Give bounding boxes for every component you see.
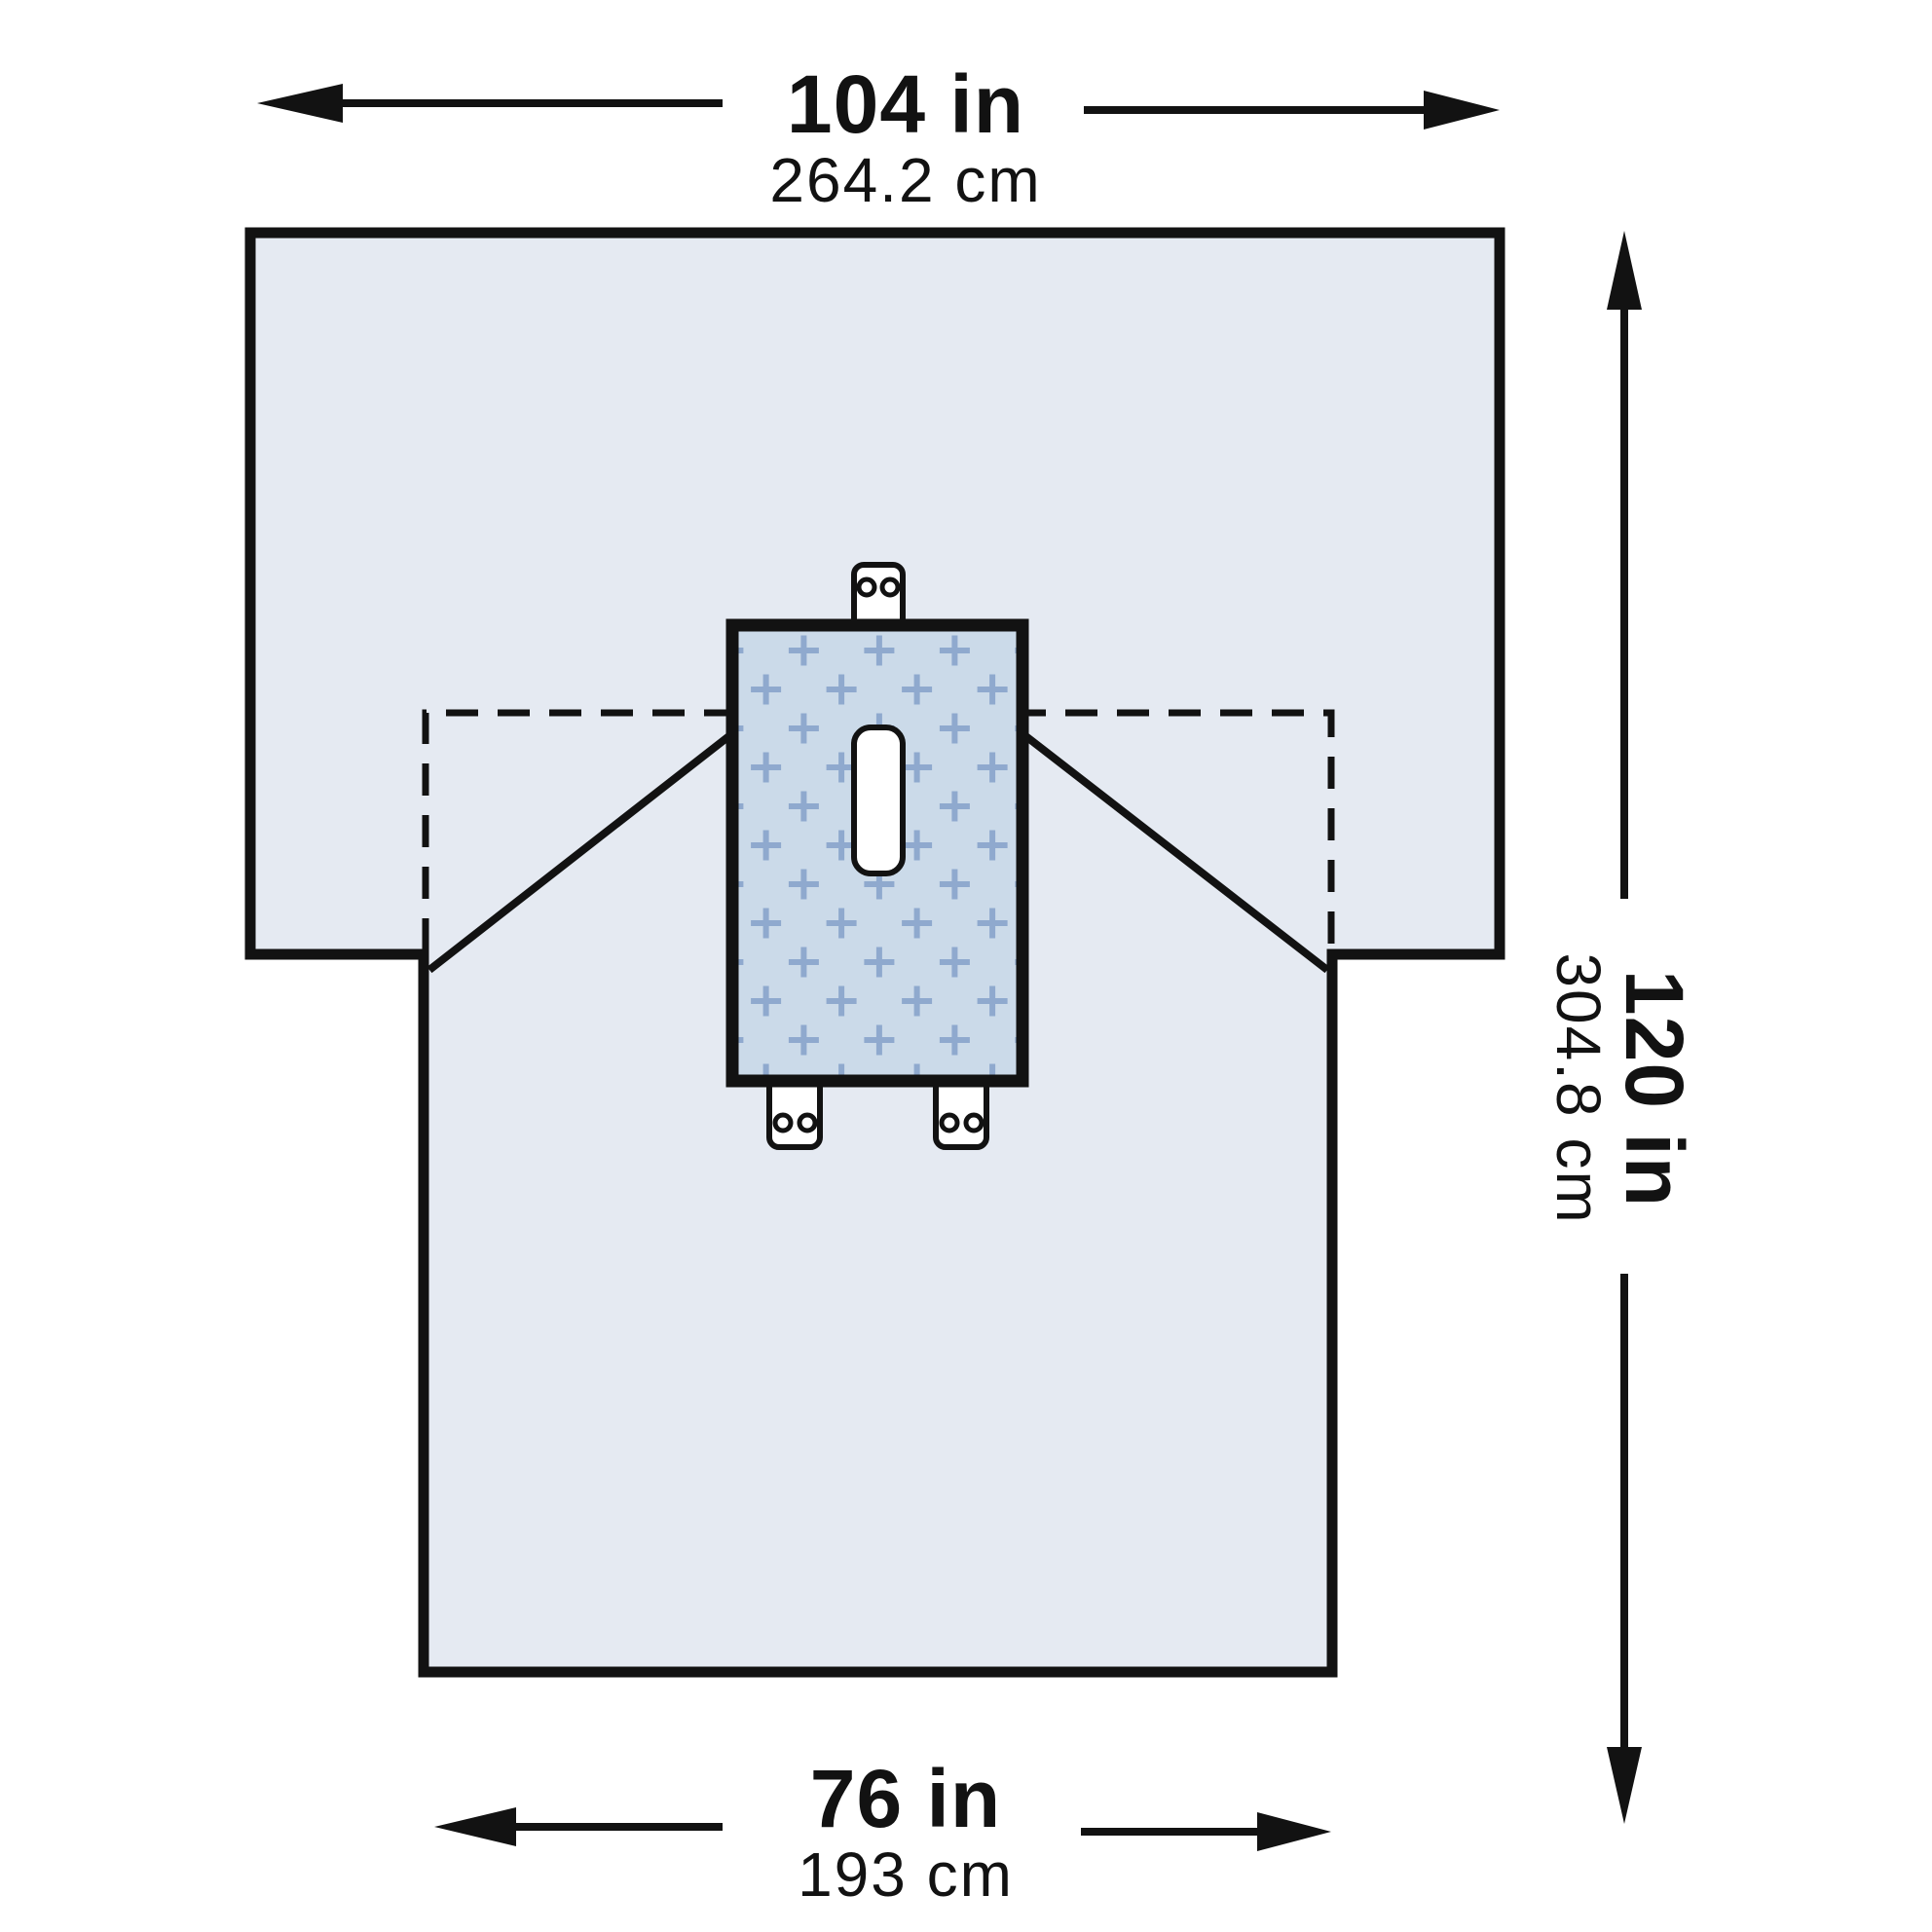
top-width-value-in: 104 in bbox=[769, 61, 1041, 147]
bottom-width-value-cm: 193 cm bbox=[798, 1841, 1014, 1908]
right-height-value-cm: 304.8 cm bbox=[1545, 952, 1612, 1224]
tab-hole-icon bbox=[799, 1115, 815, 1131]
right-height-arrow-up bbox=[1607, 231, 1642, 899]
top-width-value-cm: 264.2 cm bbox=[769, 147, 1041, 213]
bottom-width-arrow-left bbox=[434, 1807, 723, 1846]
tab-hole-icon bbox=[942, 1115, 957, 1131]
tab-hole-icon bbox=[966, 1115, 982, 1131]
bottom-width-label: 76 in 193 cm bbox=[798, 1756, 1014, 1908]
fenestration bbox=[854, 727, 903, 873]
right-height-label: 120 in 304.8 cm bbox=[1545, 952, 1697, 1224]
top-width-arrow-left bbox=[257, 84, 723, 123]
drape-dimension-diagram: 104 in 264.2 cm 120 in 304.8 cm 76 in 19… bbox=[0, 0, 1932, 1932]
tab-hole-icon bbox=[882, 579, 898, 595]
top-width-label: 104 in 264.2 cm bbox=[769, 61, 1041, 213]
arrow-up-icon bbox=[1607, 231, 1642, 310]
top-width-arrow-right bbox=[1084, 91, 1500, 130]
arrow-left-icon bbox=[434, 1807, 516, 1846]
tab-hole-icon bbox=[775, 1115, 791, 1131]
arrow-down-icon bbox=[1607, 1747, 1642, 1824]
tab-hole-icon bbox=[859, 579, 874, 595]
right-height-value-in: 120 in bbox=[1612, 952, 1697, 1224]
bottom-width-value-in: 76 in bbox=[798, 1756, 1014, 1841]
arrow-left-icon bbox=[257, 84, 343, 123]
arrow-right-icon bbox=[1257, 1812, 1331, 1851]
bottom-width-arrow-right bbox=[1081, 1812, 1331, 1851]
right-height-arrow-down bbox=[1607, 1274, 1642, 1824]
arrow-right-icon bbox=[1424, 91, 1500, 130]
